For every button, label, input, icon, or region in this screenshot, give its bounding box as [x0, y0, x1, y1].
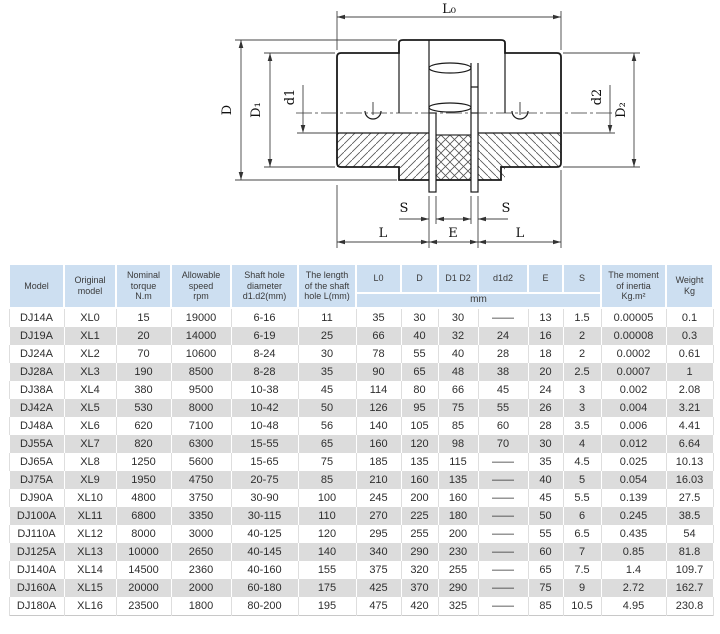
table-row: DJ180AXL1623500180080-200195475420325——8…	[9, 597, 713, 616]
table-cell: 2	[563, 345, 601, 363]
table-cell: 620	[116, 417, 171, 435]
dim-label-l0: L₀	[442, 2, 456, 17]
specification-table: Model Original model Nominal torque N.m …	[8, 263, 714, 616]
table-cell: 6800	[116, 507, 171, 525]
col-header-model: Model	[9, 264, 64, 308]
table-cell: 13	[528, 308, 563, 327]
table-cell: 5	[563, 471, 601, 489]
table-cell: 28	[528, 417, 563, 435]
table-cell: ——	[478, 525, 528, 543]
table-cell: 0.002	[601, 381, 666, 399]
dimension-lines	[235, 11, 640, 248]
table-cell: ——	[478, 489, 528, 507]
table-cell: DJ125A	[9, 543, 64, 561]
table-cell: XL2	[64, 345, 116, 363]
table-cell: 109.7	[666, 561, 713, 579]
spider-disc-edges-top	[471, 63, 478, 113]
table-cell: 114	[356, 381, 401, 399]
table-cell: 20-75	[231, 471, 298, 489]
dim-label-d-outer: D	[220, 105, 235, 115]
table-cell: ——	[478, 579, 528, 597]
table-cell: DJ48A	[9, 417, 64, 435]
table-cell: 95	[401, 399, 438, 417]
table-cell: 230	[438, 543, 478, 561]
left-hub-section	[337, 133, 429, 180]
dim-label-l-left: L	[379, 226, 388, 241]
col-header-E: E	[528, 264, 563, 293]
col-header-original-model: Original model	[64, 264, 116, 308]
table-cell: 2.72	[601, 579, 666, 597]
table-cell: 160	[401, 471, 438, 489]
table-cell: XL14	[64, 561, 116, 579]
table-cell: DJ28A	[9, 363, 64, 381]
col-header-inertia: The moment of inertia Kg.m²	[601, 264, 666, 308]
table-cell: DJ160A	[9, 579, 64, 597]
table-row: DJ42AXL5530800010-42501269575552630.0043…	[9, 399, 713, 417]
table-cell: 270	[356, 507, 401, 525]
table-cell: 6.5	[563, 525, 601, 543]
table-row: DJ48AXL6620710010-48561401058560283.50.0…	[9, 417, 713, 435]
elastomer-section	[436, 135, 471, 180]
table-cell: XL0	[64, 308, 116, 327]
table-cell: 290	[438, 579, 478, 597]
table-cell: 60	[478, 417, 528, 435]
table-row: DJ160AXL1520000200060-180175425370290——7…	[9, 579, 713, 597]
table-cell: 70	[116, 345, 171, 363]
table-cell: 140	[298, 543, 356, 561]
table-cell: 32	[438, 327, 478, 345]
table-row: DJ110AXL128000300040-125120295255200——55…	[9, 525, 713, 543]
table-cell: XL3	[64, 363, 116, 381]
table-cell: DJ75A	[9, 471, 64, 489]
table-cell: XL1	[64, 327, 116, 345]
table-cell: 2360	[171, 561, 231, 579]
table-cell: 7100	[171, 417, 231, 435]
table-cell: 5600	[171, 453, 231, 471]
table-cell: 90	[356, 363, 401, 381]
table-cell: 230.8	[666, 597, 713, 616]
table-cell: 55	[401, 345, 438, 363]
table-cell: 210	[356, 471, 401, 489]
table-cell: 1950	[116, 471, 171, 489]
table-cell: 48	[438, 363, 478, 381]
table-cell: 370	[401, 579, 438, 597]
table-cell: 0.139	[601, 489, 666, 507]
table-cell: 9500	[171, 381, 231, 399]
table-cell: 110	[298, 507, 356, 525]
table-cell: 4750	[171, 471, 231, 489]
dim-label-d2-bore: d2	[590, 89, 605, 106]
table-cell: 225	[401, 507, 438, 525]
table-cell: DJ140A	[9, 561, 64, 579]
table-cell: 81.8	[666, 543, 713, 561]
col-header-D1D2: D1 D2	[438, 264, 478, 293]
table-cell: 25	[298, 327, 356, 345]
spider-strip-left	[429, 113, 436, 192]
table-cell: 75	[438, 399, 478, 417]
table-cell: 8-28	[231, 363, 298, 381]
table-cell: 35	[356, 308, 401, 327]
table-cell: 115	[438, 453, 478, 471]
spider-strip-right	[471, 113, 478, 192]
table-cell: 3.5	[563, 417, 601, 435]
table-cell: 0.0002	[601, 345, 666, 363]
table-cell: 19000	[171, 308, 231, 327]
table-cell: 14000	[171, 327, 231, 345]
table-cell: ——	[478, 453, 528, 471]
table-cell: XL15	[64, 579, 116, 597]
table-cell: 5.5	[563, 489, 601, 507]
table-cell: 0.00008	[601, 327, 666, 345]
table-cell: 295	[356, 525, 401, 543]
table-cell: 56	[298, 417, 356, 435]
table-cell: 30-115	[231, 507, 298, 525]
table-cell: 65	[401, 363, 438, 381]
table-cell: 3.21	[666, 399, 713, 417]
dim-label-s-right: S	[502, 201, 511, 216]
table-cell: 55	[528, 525, 563, 543]
table-row: DJ75AXL91950475020-7585210160135——4050.0…	[9, 471, 713, 489]
table-cell: 140	[356, 417, 401, 435]
table-cell: 8000	[171, 399, 231, 417]
table-cell: 8-24	[231, 345, 298, 363]
col-header-L0: L0	[356, 264, 401, 293]
table-cell: 40	[401, 327, 438, 345]
table-cell: 0.0007	[601, 363, 666, 381]
table-cell: 20	[528, 363, 563, 381]
dim-label-e: E	[448, 226, 458, 241]
table-cell: 162.7	[666, 579, 713, 597]
table-cell: 28	[478, 345, 528, 363]
col-header-allowable-speed: Allowable speed rpm	[171, 264, 231, 308]
table-cell: 30	[528, 435, 563, 453]
table-cell: 85	[528, 597, 563, 616]
table-cell: XL12	[64, 525, 116, 543]
table-cell: 54	[666, 525, 713, 543]
table-cell: 78	[356, 345, 401, 363]
table-cell: 160	[438, 489, 478, 507]
table-cell: 16	[528, 327, 563, 345]
table-cell: 4800	[116, 489, 171, 507]
table-cell: XL13	[64, 543, 116, 561]
table-cell: 7	[563, 543, 601, 561]
table-cell: 155	[298, 561, 356, 579]
table-cell: 3350	[171, 507, 231, 525]
jaw-slot-lower	[429, 103, 471, 112]
table-cell: 0.025	[601, 453, 666, 471]
table-cell: XL4	[64, 381, 116, 399]
table-cell: 80-200	[231, 597, 298, 616]
table-cell: 66	[438, 381, 478, 399]
table-cell: 35	[528, 453, 563, 471]
table-cell: 2.5	[563, 363, 601, 381]
table-cell: 6	[563, 507, 601, 525]
table-cell: 3	[563, 399, 601, 417]
table-cell: 255	[438, 561, 478, 579]
table-cell: 8500	[171, 363, 231, 381]
table-cell: 10-42	[231, 399, 298, 417]
table-cell: 10-48	[231, 417, 298, 435]
table-cell: 0.004	[601, 399, 666, 417]
table-cell: 30	[298, 345, 356, 363]
table-cell: 75	[528, 579, 563, 597]
dim-label-d1-hub: D₁	[249, 102, 264, 118]
table-cell: 40-125	[231, 525, 298, 543]
table-cell: 425	[356, 579, 401, 597]
table-cell: 100	[298, 489, 356, 507]
table-cell: XL5	[64, 399, 116, 417]
table-cell: 0.006	[601, 417, 666, 435]
dimension-labels: L₀ D D₁ d1 d2 D₂ S S L E L	[220, 2, 629, 241]
table-cell: 4.41	[666, 417, 713, 435]
table-cell: DJ42A	[9, 399, 64, 417]
col-header-d1d2: d1d2	[478, 264, 528, 293]
table-cell: 7.5	[563, 561, 601, 579]
table-cell: 65	[298, 435, 356, 453]
table-cell: 15-55	[231, 435, 298, 453]
table-cell: 50	[528, 507, 563, 525]
table-cell: 26	[528, 399, 563, 417]
table-cell: 40	[438, 345, 478, 363]
table-cell: 200	[401, 489, 438, 507]
table-cell: 135	[401, 453, 438, 471]
table-cell: 160	[356, 435, 401, 453]
table-cell: 80	[401, 381, 438, 399]
table-row: DJ125AXL1310000265040-145140340290230——6…	[9, 543, 713, 561]
jaw-slot-upper	[429, 63, 471, 73]
table-cell: 4.5	[563, 453, 601, 471]
table-row: DJ100AXL116800335030-115110270225180——50…	[9, 507, 713, 525]
table-cell: 10000	[116, 543, 171, 561]
table-cell: 45	[478, 381, 528, 399]
table-cell: 0.61	[666, 345, 713, 363]
table-cell: 0.435	[601, 525, 666, 543]
table-cell: 40	[528, 471, 563, 489]
table-cell: 27.5	[666, 489, 713, 507]
table-cell: 0.85	[601, 543, 666, 561]
table-cell: 1800	[171, 597, 231, 616]
table-cell: 6-19	[231, 327, 298, 345]
table-cell: ——	[478, 543, 528, 561]
table-cell: 190	[116, 363, 171, 381]
table-cell: 6.64	[666, 435, 713, 453]
table-cell: XL9	[64, 471, 116, 489]
table-cell: 11	[298, 308, 356, 327]
table-cell: 1.5	[563, 308, 601, 327]
table-cell: DJ55A	[9, 435, 64, 453]
table-cell: 1.4	[601, 561, 666, 579]
table-cell: ——	[478, 597, 528, 616]
table-cell: 245	[356, 489, 401, 507]
table-cell: 40-160	[231, 561, 298, 579]
table-cell: 10600	[171, 345, 231, 363]
table-cell: ——	[478, 561, 528, 579]
table-cell: 120	[401, 435, 438, 453]
col-header-nominal-torque: Nominal torque N.m	[116, 264, 171, 308]
table-cell: 16.03	[666, 471, 713, 489]
table-cell: 15	[116, 308, 171, 327]
table-cell: 60-180	[231, 579, 298, 597]
table-cell: 30	[438, 308, 478, 327]
table-cell: 60	[528, 543, 563, 561]
table-row: DJ28AXL319085008-283590654838202.50.0007…	[9, 363, 713, 381]
table-cell: 0.245	[601, 507, 666, 525]
table-row: DJ140AXL1414500236040-160155375320255——6…	[9, 561, 713, 579]
table-cell: 85	[298, 471, 356, 489]
table-cell: 6300	[171, 435, 231, 453]
table-cell: 24	[528, 381, 563, 399]
table-cell: 820	[116, 435, 171, 453]
col-header-weight: Weight Kg	[666, 264, 713, 308]
table-cell: 475	[356, 597, 401, 616]
table-cell: 375	[356, 561, 401, 579]
table-cell: 290	[401, 543, 438, 561]
table-cell: 30	[401, 308, 438, 327]
table-cell: 38	[478, 363, 528, 381]
table-cell: 0.1	[666, 308, 713, 327]
table-cell: 10-38	[231, 381, 298, 399]
table-row: DJ90AXL104800375030-90100245200160——455.…	[9, 489, 713, 507]
body-contour-top	[337, 40, 561, 113]
table-cell: DJ38A	[9, 381, 64, 399]
table-row: DJ55AXL7820630015-556516012098703040.012…	[9, 435, 713, 453]
table-cell: 40-145	[231, 543, 298, 561]
table-cell: XL6	[64, 417, 116, 435]
table-cell: 4.95	[601, 597, 666, 616]
table-cell: 45	[298, 381, 356, 399]
table-cell: 2000	[171, 579, 231, 597]
table-cell: 2.08	[666, 381, 713, 399]
table-row: DJ24AXL270106008-2430785540281820.00020.…	[9, 345, 713, 363]
table-cell: 20000	[116, 579, 171, 597]
table-cell: 14500	[116, 561, 171, 579]
table-cell: 66	[356, 327, 401, 345]
table-cell: 70	[478, 435, 528, 453]
table-row: DJ65AXL81250560015-6575185135115——354.50…	[9, 453, 713, 471]
table-cell: DJ65A	[9, 453, 64, 471]
col-header-S: S	[563, 264, 601, 293]
table-cell: 255	[401, 525, 438, 543]
table-cell: 10.5	[563, 597, 601, 616]
table-cell: 3750	[171, 489, 231, 507]
table-cell: 0.3	[666, 327, 713, 345]
table-cell: 2650	[171, 543, 231, 561]
table-cell: 325	[438, 597, 478, 616]
dimension-arrowheads	[239, 15, 637, 244]
col-header-D: D	[401, 264, 438, 293]
table-cell: 1250	[116, 453, 171, 471]
table-header: Model Original model Nominal torque N.m …	[9, 264, 713, 308]
table-cell: 0.012	[601, 435, 666, 453]
right-hub-section	[478, 133, 561, 180]
table-cell: 8000	[116, 525, 171, 543]
table-cell: 30-90	[231, 489, 298, 507]
table-cell: ——	[478, 471, 528, 489]
table-cell: 45	[528, 489, 563, 507]
table-cell: 0.054	[601, 471, 666, 489]
table-cell: 38.5	[666, 507, 713, 525]
table-cell: 175	[298, 579, 356, 597]
table-cell: DJ180A	[9, 597, 64, 616]
table-cell: 530	[116, 399, 171, 417]
table-cell: XL11	[64, 507, 116, 525]
table-row: DJ19AXL120140006-1925664032241620.000080…	[9, 327, 713, 345]
table-cell: 126	[356, 399, 401, 417]
table-cell: DJ100A	[9, 507, 64, 525]
table-cell: DJ19A	[9, 327, 64, 345]
table-row: DJ38AXL4380950010-38451148066452430.0022…	[9, 381, 713, 399]
table-cell: 18	[528, 345, 563, 363]
table-cell: 340	[356, 543, 401, 561]
table-cell: 320	[401, 561, 438, 579]
table-cell: 2	[563, 327, 601, 345]
table-cell: 98	[438, 435, 478, 453]
table-cell: 6-16	[231, 308, 298, 327]
table-cell: DJ14A	[9, 308, 64, 327]
table-cell: 180	[438, 507, 478, 525]
table-cell: 23500	[116, 597, 171, 616]
dim-label-l-right: L	[516, 226, 525, 241]
table-cell: 3000	[171, 525, 231, 543]
table-cell: ——	[478, 308, 528, 327]
table-cell: 50	[298, 399, 356, 417]
dim-label-d2-hub: D₂	[614, 102, 629, 118]
col-header-shaft-hole: Shaft hole diameter d1.d2(mm)	[231, 264, 298, 308]
table-cell: 4	[563, 435, 601, 453]
section-hatching	[337, 133, 561, 180]
table-cell: 420	[401, 597, 438, 616]
dim-label-d1-bore: d1	[283, 89, 298, 106]
table-cell: XL7	[64, 435, 116, 453]
table-cell: 10.13	[666, 453, 713, 471]
table-cell: XL10	[64, 489, 116, 507]
table-cell: DJ110A	[9, 525, 64, 543]
table-cell: 105	[401, 417, 438, 435]
table-cell: 55	[478, 399, 528, 417]
table-cell: ——	[478, 507, 528, 525]
table-cell: DJ90A	[9, 489, 64, 507]
table-cell: 195	[298, 597, 356, 616]
col-header-shaft-length: The length of the shaft hole L(mm)	[298, 264, 356, 308]
table-cell: 185	[356, 453, 401, 471]
table-cell: 3	[563, 381, 601, 399]
table-cell: 85	[438, 417, 478, 435]
table-cell: 9	[563, 579, 601, 597]
table-cell: 24	[478, 327, 528, 345]
table-cell: 75	[298, 453, 356, 471]
coupling-technical-drawing: L₀ D D₁ d1 d2 D₂ S S L E L	[0, 0, 720, 262]
table-cell: 1	[666, 363, 713, 381]
table-cell: 200	[438, 525, 478, 543]
dim-label-s-left: S	[400, 201, 409, 216]
col-header-mm-unit: mm	[356, 293, 601, 308]
table-cell: 65	[528, 561, 563, 579]
table-cell: XL16	[64, 597, 116, 616]
table-cell: 0.00005	[601, 308, 666, 327]
table-cell: 380	[116, 381, 171, 399]
spec-table-body: DJ14AXL015190006-1611353030——131.50.0000…	[9, 308, 713, 616]
table-cell: 35	[298, 363, 356, 381]
table-row: DJ14AXL015190006-1611353030——131.50.0000…	[9, 308, 713, 327]
table-cell: DJ24A	[9, 345, 64, 363]
table-cell: 20	[116, 327, 171, 345]
table-cell: 120	[298, 525, 356, 543]
table-cell: 15-65	[231, 453, 298, 471]
table-cell: 135	[438, 471, 478, 489]
table-cell: XL8	[64, 453, 116, 471]
